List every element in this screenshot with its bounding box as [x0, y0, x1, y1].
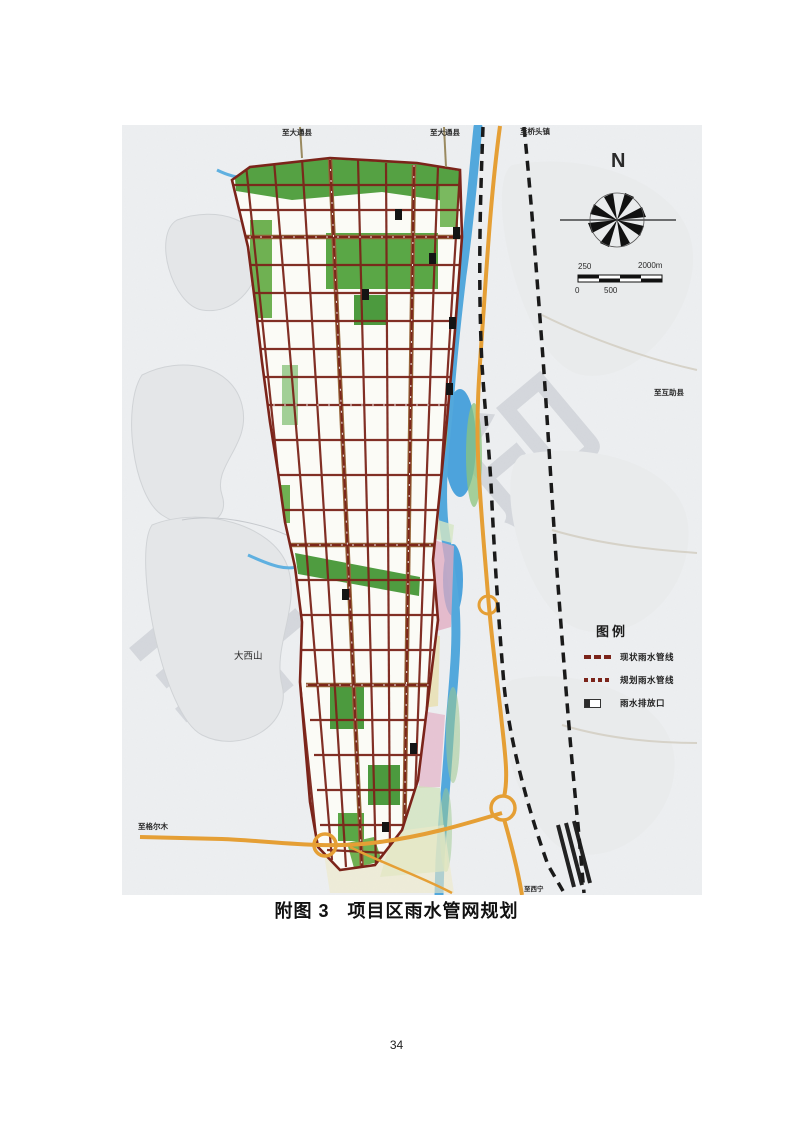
planning-map: 非 印: [122, 125, 702, 895]
legend-item-label: 规划雨水管线: [620, 674, 674, 686]
figure-title: 项目区雨水管网规划: [348, 901, 519, 921]
page-number: 34: [0, 1038, 793, 1052]
planned-pipe-line-icon: [584, 678, 612, 682]
svg-text:0: 0: [575, 286, 580, 295]
road-label: 至桥头镇: [520, 126, 550, 136]
svg-text:250: 250: [578, 262, 592, 271]
mountain-label: 大西山: [234, 650, 263, 662]
legend-item-label: 雨水排放口: [620, 697, 665, 709]
existing-pipe-line-icon: [584, 655, 612, 659]
figure-caption: 附图 3项目区雨水管网规划: [0, 897, 793, 923]
outfall-box-icon: [584, 699, 601, 708]
legend-item-outfall: 雨水排放口: [584, 697, 702, 709]
svg-text:2000m: 2000m: [638, 261, 663, 270]
road-label: 至格尔木: [138, 821, 168, 831]
map-legend: 图例 现状雨水管线 规划雨水管线 雨水排放口: [584, 621, 702, 709]
north-label: N: [611, 150, 625, 172]
legend-item-label: 现状雨水管线: [620, 651, 674, 663]
legend-item-existing-pipe: 现状雨水管线: [584, 651, 702, 663]
map-canvas: N 250 2000m 0 500: [122, 125, 702, 895]
road-label: 至西宁: [524, 884, 544, 893]
figure-number: 附图 3: [274, 901, 329, 921]
road-label: 至大通县: [282, 127, 312, 137]
legend-item-planned-pipe: 规划雨水管线: [584, 674, 702, 686]
road-label: 至大通县: [430, 127, 460, 137]
road-label: 至互助县: [654, 387, 684, 397]
svg-text:500: 500: [604, 286, 618, 295]
legend-title: 图例: [596, 621, 702, 640]
document-page: 非 印: [0, 0, 793, 1122]
